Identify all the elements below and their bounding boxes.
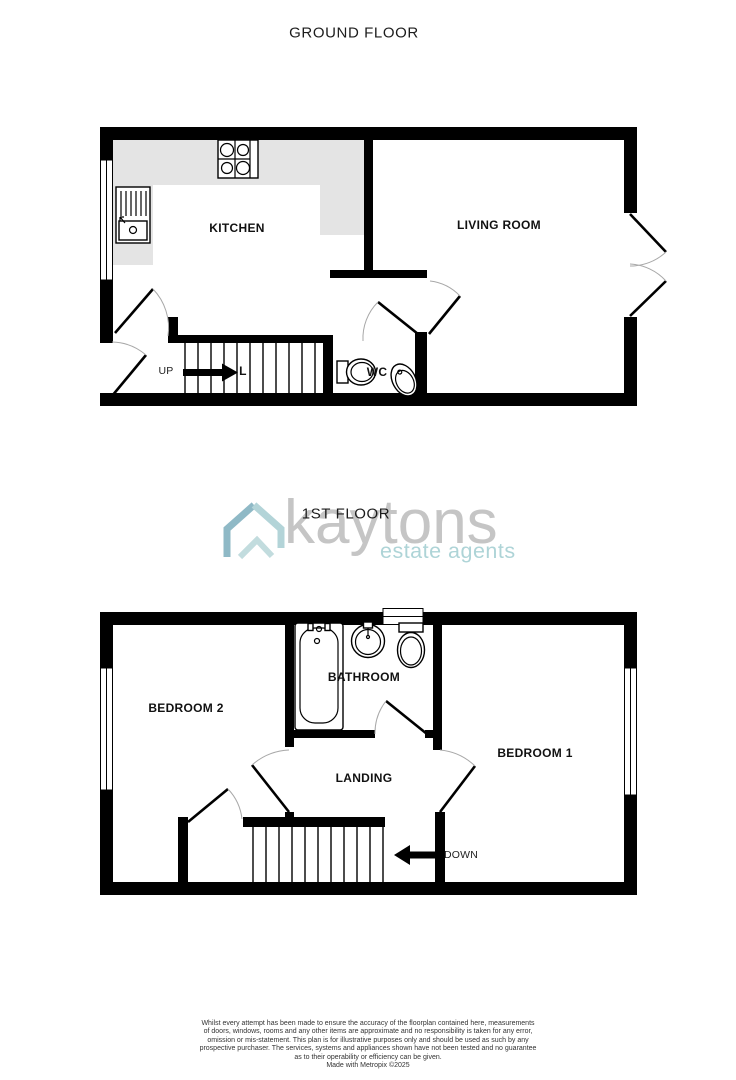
disclaimer-line: as to their operability or efficiency ca… <box>0 1054 736 1062</box>
staircase-down <box>253 827 383 882</box>
sink-icon <box>116 187 150 243</box>
disclaimer-line: prospective purchaser. The services, sys… <box>0 1045 736 1053</box>
staircase-up <box>185 343 315 393</box>
disclaimer: Whilst every attempt has been made to en… <box>0 1020 736 1070</box>
floorplan-page: GROUND FLOOR KITCHEN LIVING ROOM UP L WC… <box>0 0 736 1080</box>
bathroom-window <box>383 609 423 625</box>
up-label: UP <box>159 365 174 377</box>
bedroom2-window <box>101 668 113 790</box>
kitchen-window <box>101 160 113 280</box>
bedroom1-window <box>625 668 637 795</box>
wc-label: WC <box>367 365 388 379</box>
disclaimer-line: omission or mis-statement. This plan is … <box>0 1037 736 1045</box>
wc-door <box>363 302 418 341</box>
disclaimer-line: Whilst every attempt has been made to en… <box>0 1020 736 1028</box>
kaytons-logo-tagline: estate agents <box>380 541 516 563</box>
kaytons-house-icon <box>227 505 281 557</box>
bedroom1-label: BEDROOM 1 <box>497 746 572 760</box>
front-door <box>112 342 146 396</box>
metropix-credit: Made with Metropix ©2025 <box>0 1062 736 1070</box>
bedroom2-door <box>252 750 289 812</box>
living-room-label: LIVING ROOM <box>457 218 541 232</box>
hall-label: L <box>239 364 247 378</box>
bedroom1-door <box>440 750 475 812</box>
bathroom-basin-icon <box>352 622 385 658</box>
bathroom-toilet-icon <box>398 623 425 668</box>
first-floor-title: 1ST FLOOR <box>302 506 390 523</box>
down-label: DOWN <box>444 849 478 861</box>
hob-icon <box>218 140 258 178</box>
ground-floor-title: GROUND FLOOR <box>289 25 419 42</box>
french-doors <box>630 214 666 316</box>
bathroom-label: BATHROOM <box>328 670 400 684</box>
cupboard-door <box>188 789 242 822</box>
living-room-door <box>429 281 460 334</box>
disclaimer-line: of doors, windows, rooms and any other i… <box>0 1028 736 1036</box>
kitchen-label: KITCHEN <box>209 221 264 235</box>
kitchen-door <box>115 289 169 336</box>
landing-label: LANDING <box>336 771 393 785</box>
bedroom2-label: BEDROOM 2 <box>148 701 223 715</box>
bathroom-door <box>375 701 427 734</box>
